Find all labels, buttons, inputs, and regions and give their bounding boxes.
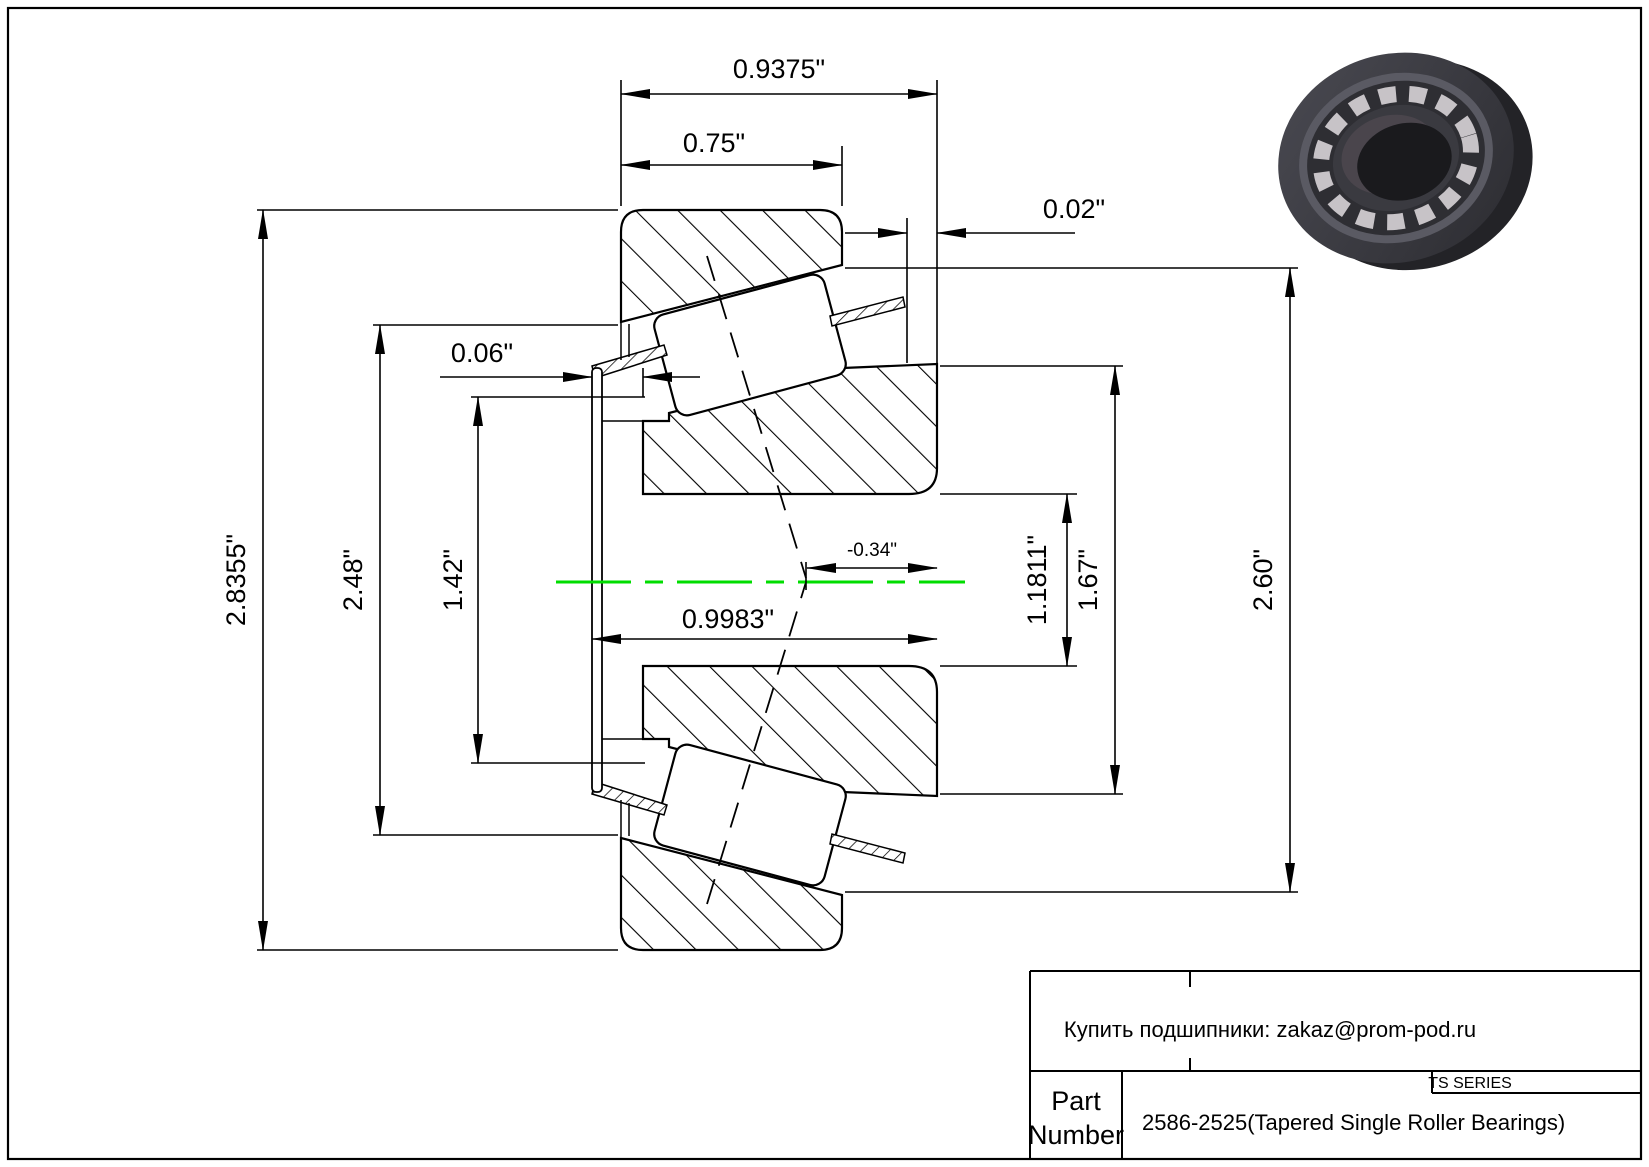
cup-corner-stubs <box>602 322 643 838</box>
bearing-photo <box>1252 19 1559 304</box>
technical-drawing-svg: 0.9375" 0.75" 0.02" 0.06" 2.8355" 2.48" <box>0 0 1649 1167</box>
cage-strip-bottom-right <box>830 834 905 863</box>
vendor-note: Купить подшипники: zakaz@prom-pod.ru <box>1064 1017 1476 1042</box>
part-number-value: 2586-2525(Tapered Single Roller Bearings… <box>1142 1110 1565 1135</box>
dim-cage-diameter: 1.42" <box>438 397 645 763</box>
dim-shoulder-diameter: 2.60" <box>845 268 1298 892</box>
dim-label-cup-od: 2.8355" <box>221 534 251 626</box>
dim-label-cup-width: 0.75" <box>683 128 745 158</box>
part-number-label-line2: Number <box>1028 1120 1124 1150</box>
dim-label-cone-width: 0.9983" <box>682 604 774 634</box>
dim-standout: 0.02" <box>845 194 1105 363</box>
cage-strip-top-right <box>830 297 905 326</box>
dim-label-bore-diameter: 1.1811" <box>1022 535 1052 625</box>
dim-label-cage-protrusion: 0.06" <box>451 338 513 368</box>
dim-label-shoulder-diameter: 2.60" <box>1248 549 1278 611</box>
dim-cup-od: 2.8355" <box>221 210 618 950</box>
drawing-page: 0.9375" 0.75" 0.02" 0.06" 2.8355" 2.48" <box>0 0 1649 1167</box>
dim-label-cage-diameter: 1.42" <box>438 549 468 611</box>
dim-label-overall-width: 0.9375" <box>733 54 825 84</box>
bearing-cross-section <box>556 210 965 950</box>
dim-label-standout: 0.02" <box>1043 194 1105 224</box>
cage-rim <box>592 368 602 792</box>
title-block: Купить подшипники: zakaz@prom-pod.ru Par… <box>1028 971 1641 1159</box>
series-badge: TS SERIES <box>1428 1075 1512 1092</box>
part-number-label-line1: Part <box>1051 1086 1101 1116</box>
dim-label-load-center-offset: -0.34" <box>847 540 897 561</box>
dim-cone-width: 0.9983" <box>592 604 937 639</box>
dim-cup-width: 0.75" <box>621 128 842 206</box>
dim-label-rib-diameter: 1.67" <box>1073 549 1103 611</box>
dim-bore-diameter: 1.1811" <box>940 494 1077 666</box>
dim-label-flange-diameter: 2.48" <box>338 549 368 611</box>
